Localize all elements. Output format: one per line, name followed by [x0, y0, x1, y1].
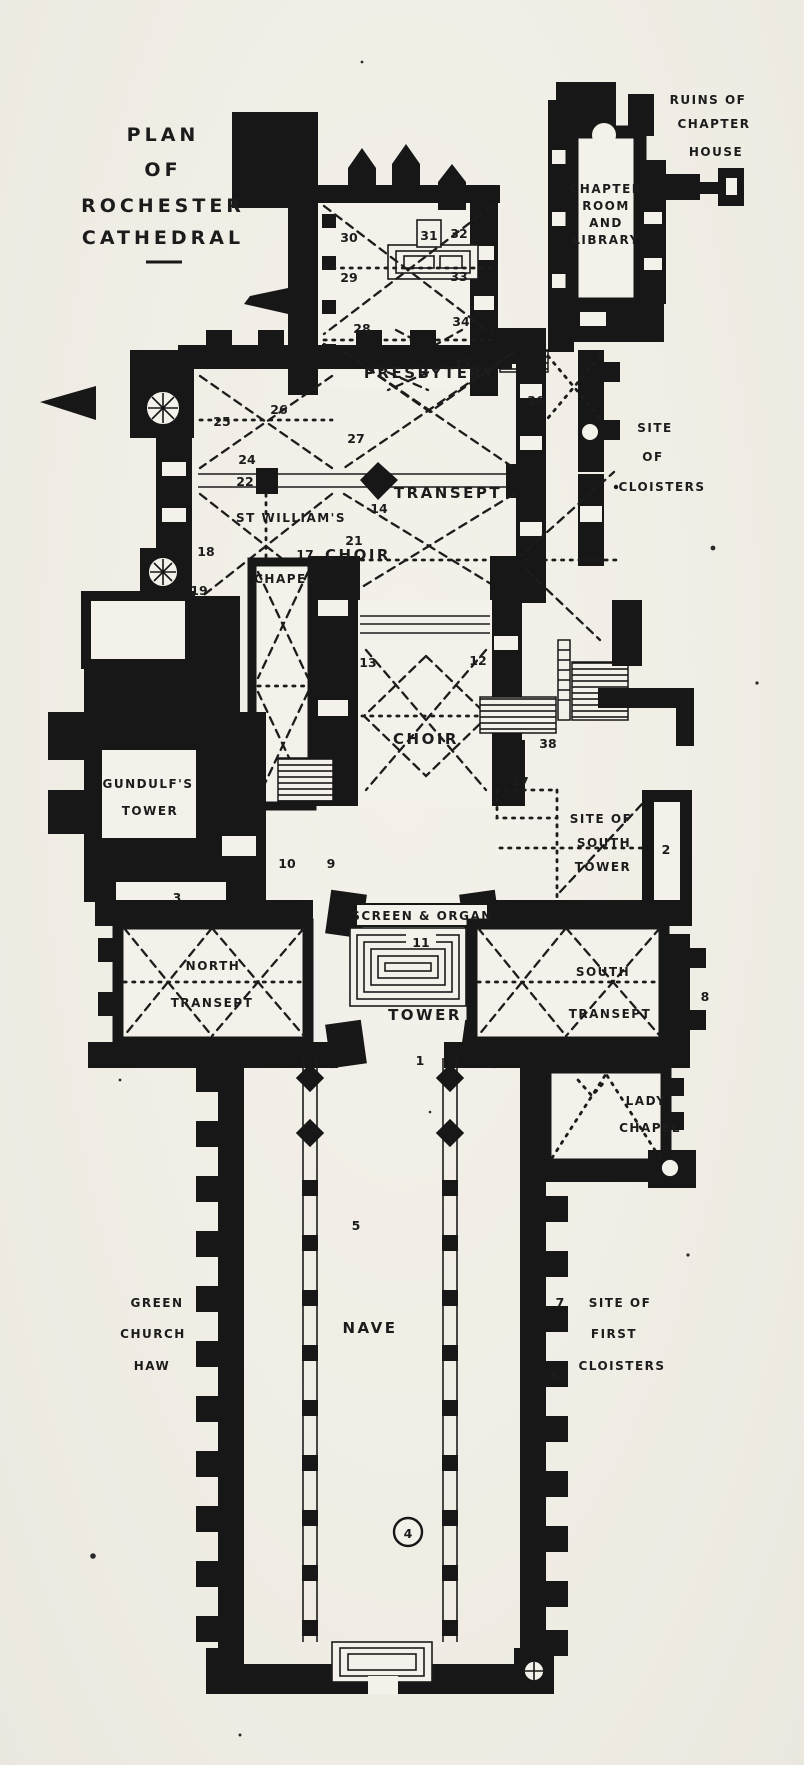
site-of-first-cloisters-label: SITE OF FIRST CLOISTERS [578, 1296, 665, 1373]
st-williams-line1: ST WILLIAM'S [236, 511, 346, 525]
nave-structure [196, 1045, 568, 1694]
site-of-south-tower-label: SITE OF SOUTH TOWER [570, 812, 633, 874]
marker-29: 29 [340, 270, 357, 285]
first-cloisters-line1: SITE OF [589, 1296, 652, 1310]
spiral-stair-north-turret [148, 393, 178, 423]
ruins-line2: CHAPTER [677, 117, 750, 131]
cloisters-line3: CLOISTERS [618, 480, 705, 494]
marker-7: 7 [556, 1295, 565, 1310]
screen-organ-label: SCREEN & ORGAN [351, 909, 493, 923]
green-church-haw-line3: HAW [134, 1359, 171, 1373]
choir-transept-label: CHOIR TRANSEPT [325, 484, 502, 564]
marker-17: 17 [296, 547, 313, 562]
marker-34: 34 [452, 314, 470, 329]
green-church-haw-line1: GREEN [130, 1296, 183, 1310]
south-tower-line2: SOUTH [577, 836, 631, 850]
plan-title-line4: CATHEDRAL [82, 227, 244, 249]
choir-transept-line1: CHOIR [325, 546, 391, 564]
cathedral-plan-drawing: PLAN OF ROCHESTER CATHEDRAL RUINS OF CHA… [0, 0, 804, 1765]
st-williams-line2: CHAPEL [254, 572, 316, 586]
marker-6: 6 [551, 1368, 560, 1383]
marker-25: 25 [213, 414, 230, 429]
marker-22: 22 [236, 474, 253, 489]
south-transept-structure [472, 924, 706, 1044]
south-tower-line1: SITE OF [570, 812, 633, 826]
first-cloisters-line3: CLOISTERS [578, 1359, 665, 1373]
marker-35: 35 [453, 356, 470, 371]
north-transept-structure [98, 924, 308, 1042]
marker-18: 18 [197, 544, 214, 559]
choir-steps [480, 697, 556, 733]
marker-27: 27 [347, 431, 364, 446]
marker-11: 11 [412, 935, 429, 950]
ruins-line3: HOUSE [689, 145, 743, 159]
scanned-plan-page: PLAN OF ROCHESTER CATHEDRAL RUINS OF CHA… [0, 0, 804, 1765]
plan-title-line1: PLAN [127, 124, 200, 146]
crossing-tower-label: TOWER [388, 1006, 462, 1024]
choir-transept-line2: TRANSEPT [394, 484, 502, 502]
marker-38: 38 [539, 736, 556, 751]
site-of-cloisters-label: SITE OF CLOISTERS [614, 421, 706, 494]
marker-13: 13 [359, 655, 376, 670]
choir-label: CHOIR [393, 730, 459, 748]
crypt-steps [278, 758, 333, 801]
marker-30: 30 [340, 230, 358, 245]
nave-pillars [296, 1064, 464, 1636]
gundulf-tower-interior [102, 750, 196, 838]
cloisters-line1: SITE [637, 421, 673, 435]
marker-28: 28 [353, 321, 370, 336]
marker-26: 26 [270, 402, 288, 417]
marker-21: 21 [345, 533, 362, 548]
marker-36: 36 [527, 393, 545, 408]
marker-3: 3 [173, 890, 182, 905]
plan-title-line3: ROCHESTER [81, 195, 245, 217]
north-transept-line1: NORTH [186, 959, 241, 973]
lady-chapel-line1: LADY [626, 1094, 667, 1108]
marker-2: 2 [662, 842, 671, 857]
first-cloisters-line2: FIRST [591, 1327, 637, 1341]
title-block: PLAN OF ROCHESTER CATHEDRAL [81, 124, 245, 262]
gundulf-line2: TOWER [122, 804, 179, 818]
chapter-house-ruin-fragment [660, 168, 744, 206]
marker-8: 8 [701, 989, 710, 1004]
marker-5: 5 [352, 1218, 361, 1233]
north-transept-line2: TRANSEPT [171, 996, 254, 1010]
plan-title-line2: OF [144, 159, 181, 181]
gundulf-line1: GUNDULF'S [102, 777, 193, 791]
presbytery-label: PRESBYTERY [364, 364, 496, 382]
lady-chapel-line2: CHAPEL [619, 1121, 681, 1135]
south-transept-line2: TRANSEPT [569, 1007, 652, 1021]
marker-14: 14 [370, 501, 388, 516]
ruins-of-chapter-house-label: RUINS OF CHAPTER HOUSE [670, 93, 751, 159]
marker-19: 19 [190, 583, 207, 598]
cloisters-line2: OF [642, 450, 663, 464]
marker-31: 31 [420, 228, 437, 243]
ruins-line1: RUINS OF [670, 93, 747, 107]
green-church-haw-label: GREEN CHURCH HAW [120, 1296, 186, 1373]
west-front [206, 1642, 554, 1694]
south-tower-line3: TOWER [575, 860, 632, 874]
green-church-haw-line2: CHURCH [120, 1327, 186, 1341]
stair-ladder [558, 640, 570, 720]
chapter-room-line1: CHAPTER [569, 182, 642, 196]
marker-24: 24 [238, 452, 256, 467]
chapter-room-line3: AND [589, 216, 623, 230]
chapter-room-line4: LIBRARY [572, 233, 640, 247]
marker-12: 12 [469, 653, 486, 668]
marker-1: 1 [416, 1053, 425, 1068]
nave-label: NAVE [343, 1319, 398, 1337]
south-transept-line1: SOUTH [576, 965, 630, 979]
marker-4: 4 [404, 1526, 413, 1541]
marker-10: 10 [278, 856, 296, 871]
marker-37: 37 [511, 774, 528, 789]
marker-33: 33 [450, 269, 467, 284]
marker-9: 9 [327, 856, 336, 871]
chapter-room-line2: ROOM [582, 199, 630, 213]
marker-32: 32 [450, 226, 467, 241]
nave-buttresses [196, 1066, 568, 1656]
